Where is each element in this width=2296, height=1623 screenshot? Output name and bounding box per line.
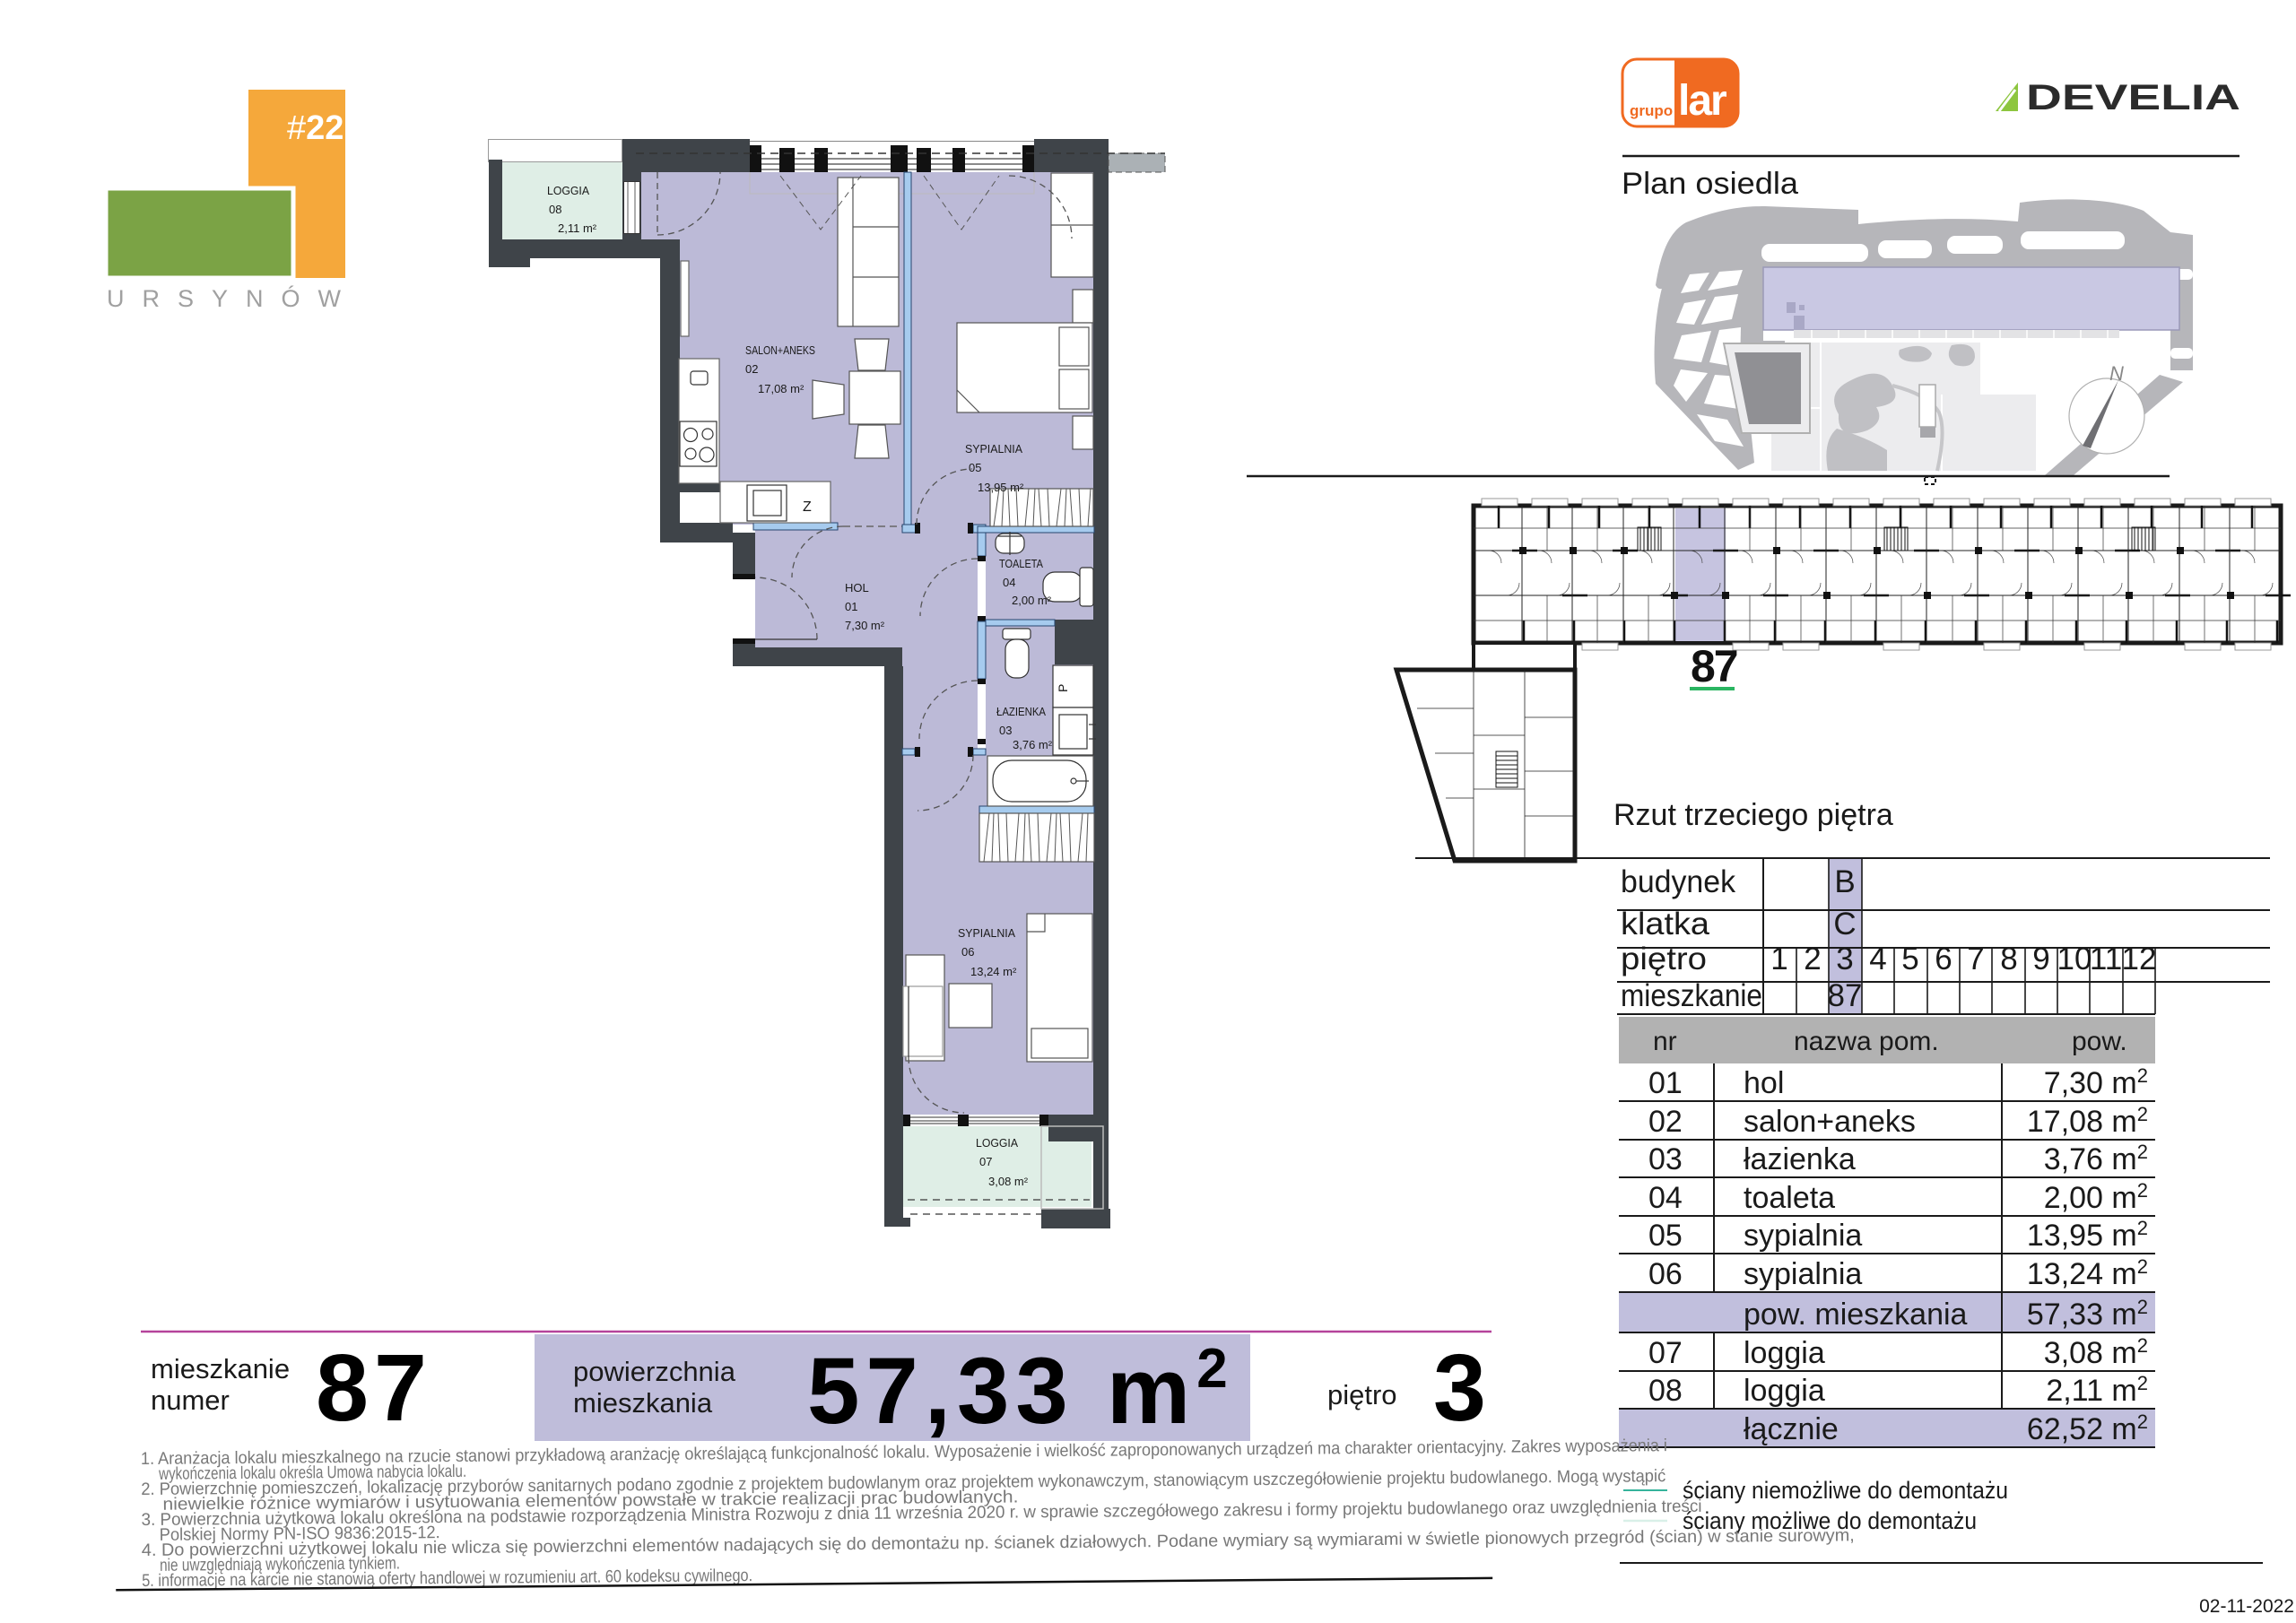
svg-text:łącznie: łącznie	[1744, 1412, 1839, 1446]
svg-text:03: 03	[999, 724, 1012, 737]
svg-text:04: 04	[1003, 576, 1015, 589]
svg-text:3,76 m2: 3,76 m2	[2044, 1141, 2148, 1176]
svg-text:N: N	[2109, 362, 2124, 385]
svg-text:TOALETA: TOALETA	[999, 557, 1043, 570]
svg-text:nazwa pom.: nazwa pom.	[1794, 1027, 1939, 1056]
svg-text:mieszkania: mieszkania	[573, 1387, 713, 1419]
svg-text:1: 1	[1770, 942, 1787, 976]
svg-text:SYPIALNIA: SYPIALNIA	[958, 926, 1015, 940]
svg-text:LOGGIA: LOGGIA	[976, 1136, 1018, 1150]
svg-text:7,30 m²: 7,30 m²	[845, 619, 885, 632]
svg-text:Z: Z	[803, 499, 812, 515]
svg-text:7,30 m2: 7,30 m2	[2044, 1064, 2148, 1100]
svg-text:87: 87	[1828, 978, 1863, 1013]
svg-text:budynek: budynek	[1621, 864, 1735, 899]
svg-text:URSYNÓW: URSYNÓW	[107, 284, 359, 312]
svg-text:P: P	[1056, 684, 1070, 692]
svg-text:03: 03	[1648, 1142, 1683, 1176]
svg-text:ŁAZIENKA: ŁAZIENKA	[996, 705, 1046, 718]
svg-text:łazienka: łazienka	[1744, 1142, 1856, 1176]
svg-text:loggia: loggia	[1744, 1336, 1825, 1370]
svg-text:hol: hol	[1744, 1066, 1784, 1100]
svg-text:3: 3	[1836, 942, 1853, 976]
svg-text:57,33 m2: 57,33 m2	[807, 1338, 1234, 1444]
svg-text:10: 10	[2057, 942, 2092, 976]
svg-text:13,24 m²: 13,24 m²	[970, 965, 1017, 978]
svg-text:9: 9	[2032, 942, 2049, 976]
svg-text:06: 06	[961, 945, 974, 959]
svg-text:DEVELIA: DEVELIA	[2026, 78, 2240, 117]
svg-text:05: 05	[1648, 1219, 1683, 1253]
svg-text:3: 3	[1433, 1335, 1486, 1441]
svg-text:powierzchnia: powierzchnia	[573, 1356, 736, 1387]
svg-text:Plan osiedla: Plan osiedla	[1622, 167, 1798, 201]
svg-text:17,08 m2: 17,08 m2	[2027, 1103, 2148, 1139]
svg-text:loggia: loggia	[1744, 1374, 1825, 1408]
svg-text:Rzut trzeciego piętra: Rzut trzeciego piętra	[1613, 798, 1893, 832]
svg-text:6: 6	[1935, 942, 1952, 976]
svg-text:12: 12	[2122, 942, 2157, 976]
svg-text:numer: numer	[151, 1384, 230, 1416]
svg-text:13,95 m2: 13,95 m2	[2027, 1217, 2148, 1253]
svg-text:klatka: klatka	[1621, 907, 1710, 942]
svg-text:07: 07	[1648, 1336, 1683, 1370]
svg-text:ściany niemożliwe do demontażu: ściany niemożliwe do demontażu	[1683, 1477, 2008, 1504]
svg-text:3,08 m²: 3,08 m²	[988, 1175, 1029, 1188]
svg-text:mieszkanie: mieszkanie	[151, 1353, 290, 1384]
svg-text:toaleta: toaleta	[1744, 1181, 1835, 1215]
svg-text:piętro: piętro	[1621, 942, 1707, 976]
svg-text:grupo: grupo	[1630, 102, 1673, 119]
svg-text:C: C	[1833, 907, 1856, 942]
svg-text:4: 4	[1869, 942, 1886, 976]
svg-text:sypialnia: sypialnia	[1744, 1219, 1862, 1253]
svg-text:nr: nr	[1653, 1027, 1677, 1056]
svg-text:02: 02	[1648, 1105, 1683, 1139]
svg-text:01: 01	[845, 600, 857, 613]
svg-text:2,00 m²: 2,00 m²	[1012, 594, 1052, 607]
svg-text:01: 01	[1648, 1066, 1683, 1100]
svg-text:13,24 m2: 13,24 m2	[2027, 1255, 2148, 1291]
svg-text:B: B	[1834, 864, 1855, 899]
svg-text:13,95 m²: 13,95 m²	[978, 481, 1024, 494]
svg-text:87: 87	[1691, 641, 1737, 691]
svg-text:06: 06	[1648, 1257, 1683, 1291]
svg-text:salon+aneks: salon+aneks	[1744, 1105, 1916, 1139]
svg-text:04: 04	[1648, 1181, 1683, 1215]
svg-text:lar: lar	[1678, 77, 1726, 125]
svg-text:piętro: piętro	[1327, 1379, 1397, 1410]
svg-text:02-11-2022: 02-11-2022	[2199, 1596, 2294, 1617]
svg-text:08: 08	[549, 203, 561, 216]
svg-text:sypialnia: sypialnia	[1744, 1257, 1862, 1291]
svg-text:mieszkanie: mieszkanie	[1621, 978, 1762, 1013]
svg-text:pow.: pow.	[2072, 1027, 2127, 1056]
svg-text:5: 5	[1901, 942, 1918, 976]
svg-text:8: 8	[2000, 942, 2017, 976]
svg-text:2,11 m2: 2,11 m2	[2046, 1372, 2148, 1408]
svg-text:2,11 m²: 2,11 m²	[558, 221, 597, 235]
svg-text:17,08 m²: 17,08 m²	[758, 382, 804, 395]
svg-text:2,00 m2: 2,00 m2	[2044, 1179, 2148, 1215]
svg-text:02: 02	[745, 362, 758, 376]
svg-text:SYPIALNIA: SYPIALNIA	[965, 442, 1022, 456]
svg-text:7: 7	[1967, 942, 1984, 976]
svg-text:11: 11	[2090, 942, 2122, 976]
svg-text:07: 07	[979, 1155, 992, 1168]
svg-text:pow. mieszkania: pow. mieszkania	[1744, 1298, 1968, 1332]
svg-text:2: 2	[1804, 942, 1821, 976]
svg-text:05: 05	[969, 461, 981, 474]
svg-text:3,76 m²: 3,76 m²	[1013, 738, 1053, 751]
svg-text:57,33 m2: 57,33 m2	[2027, 1296, 2148, 1332]
svg-text:87: 87	[316, 1335, 432, 1441]
svg-text:08: 08	[1648, 1374, 1683, 1408]
svg-text:HOL: HOL	[845, 581, 869, 595]
svg-text:SALON+ANEKS: SALON+ANEKS	[745, 343, 815, 357]
svg-text:3,08 m2: 3,08 m2	[2044, 1334, 2148, 1370]
svg-text:62,52 m2: 62,52 m2	[2027, 1410, 2148, 1446]
svg-text:#22: #22	[287, 109, 344, 147]
svg-text:LOGGIA: LOGGIA	[547, 184, 589, 197]
